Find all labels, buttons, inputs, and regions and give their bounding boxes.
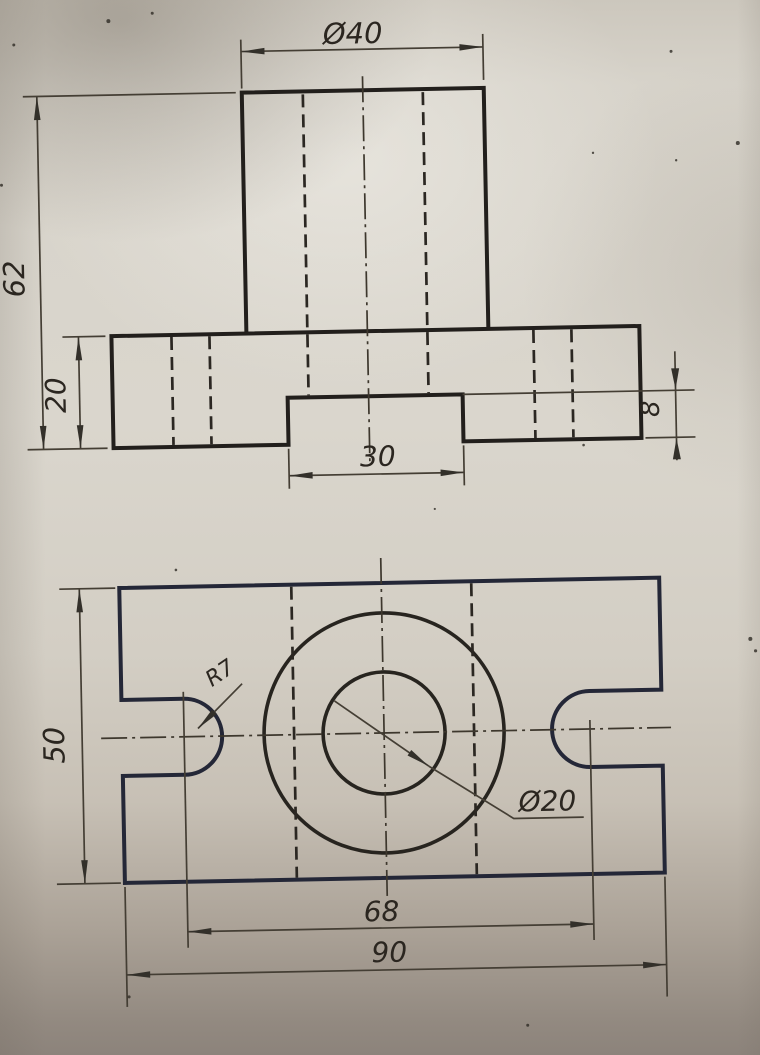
groove-hidden-line-left (291, 587, 297, 878)
extension-line (483, 34, 484, 80)
extension-line (645, 437, 695, 438)
r7-leader: R7 (197, 655, 243, 729)
slot-hidden-line-left-inner (209, 336, 211, 444)
extension-line (183, 692, 188, 948)
thickness20-dimension: 20 (38, 336, 107, 449)
depth50-dimension: 50 (34, 588, 121, 885)
vertical-center-line (381, 558, 388, 901)
plate-outline (119, 578, 665, 883)
drawing-svg: Ø40 62 20 30 (0, 0, 760, 1055)
dim-label-50: 50 (37, 727, 72, 765)
extension-line (28, 448, 108, 450)
hole-hidden-line-right (423, 92, 429, 393)
dimension-line (79, 589, 85, 884)
extension-line (463, 390, 695, 394)
extension-line (464, 445, 465, 485)
extension-line (59, 588, 115, 589)
hole-hidden-line-left (303, 94, 309, 395)
paper-specks (0, 0, 760, 1036)
dim-label-dia40: Ø40 (321, 16, 382, 51)
dia20-leader: Ø20 (334, 696, 583, 822)
slot-hidden-line-right-outer (571, 329, 573, 437)
dim-label-90: 90 (371, 936, 407, 970)
dim-label-30: 30 (360, 440, 396, 474)
slot-hidden-line-right-inner (533, 330, 535, 438)
extension-line (241, 40, 242, 89)
slot-hidden-line-left-outer (171, 337, 173, 445)
arrow-down-icon (671, 368, 679, 389)
extension-line (590, 720, 594, 940)
dim-label-r7: R7 (201, 655, 239, 692)
extension-line (62, 336, 105, 337)
height62-dimension: 62 (0, 93, 243, 451)
extension-line (665, 877, 667, 997)
groove-hidden-line-right (471, 583, 477, 874)
dimension-line (78, 337, 80, 449)
scanned-paper: Ø40 62 20 30 (0, 0, 760, 1055)
extension-line (289, 449, 290, 489)
dim-label-68: 68 (363, 895, 399, 929)
extension-line (57, 883, 121, 884)
arrow-up-icon (672, 438, 680, 459)
groove30-dimension: 30 (288, 438, 464, 488)
dim-label-dia20: Ø20 (517, 784, 576, 818)
extension-line (23, 93, 236, 97)
front-view: Ø40 62 20 30 (0, 10, 696, 494)
dim-label-8: 8 (636, 400, 666, 417)
dim-label-62: 62 (0, 260, 32, 298)
extension-line (125, 887, 127, 1007)
dim-label-20: 20 (39, 377, 73, 413)
top-view: 50 68 90 R7 (34, 552, 676, 1008)
base-outline (111, 326, 641, 448)
front-center-line (362, 76, 369, 461)
depth8-dimension: 8 (462, 351, 696, 464)
